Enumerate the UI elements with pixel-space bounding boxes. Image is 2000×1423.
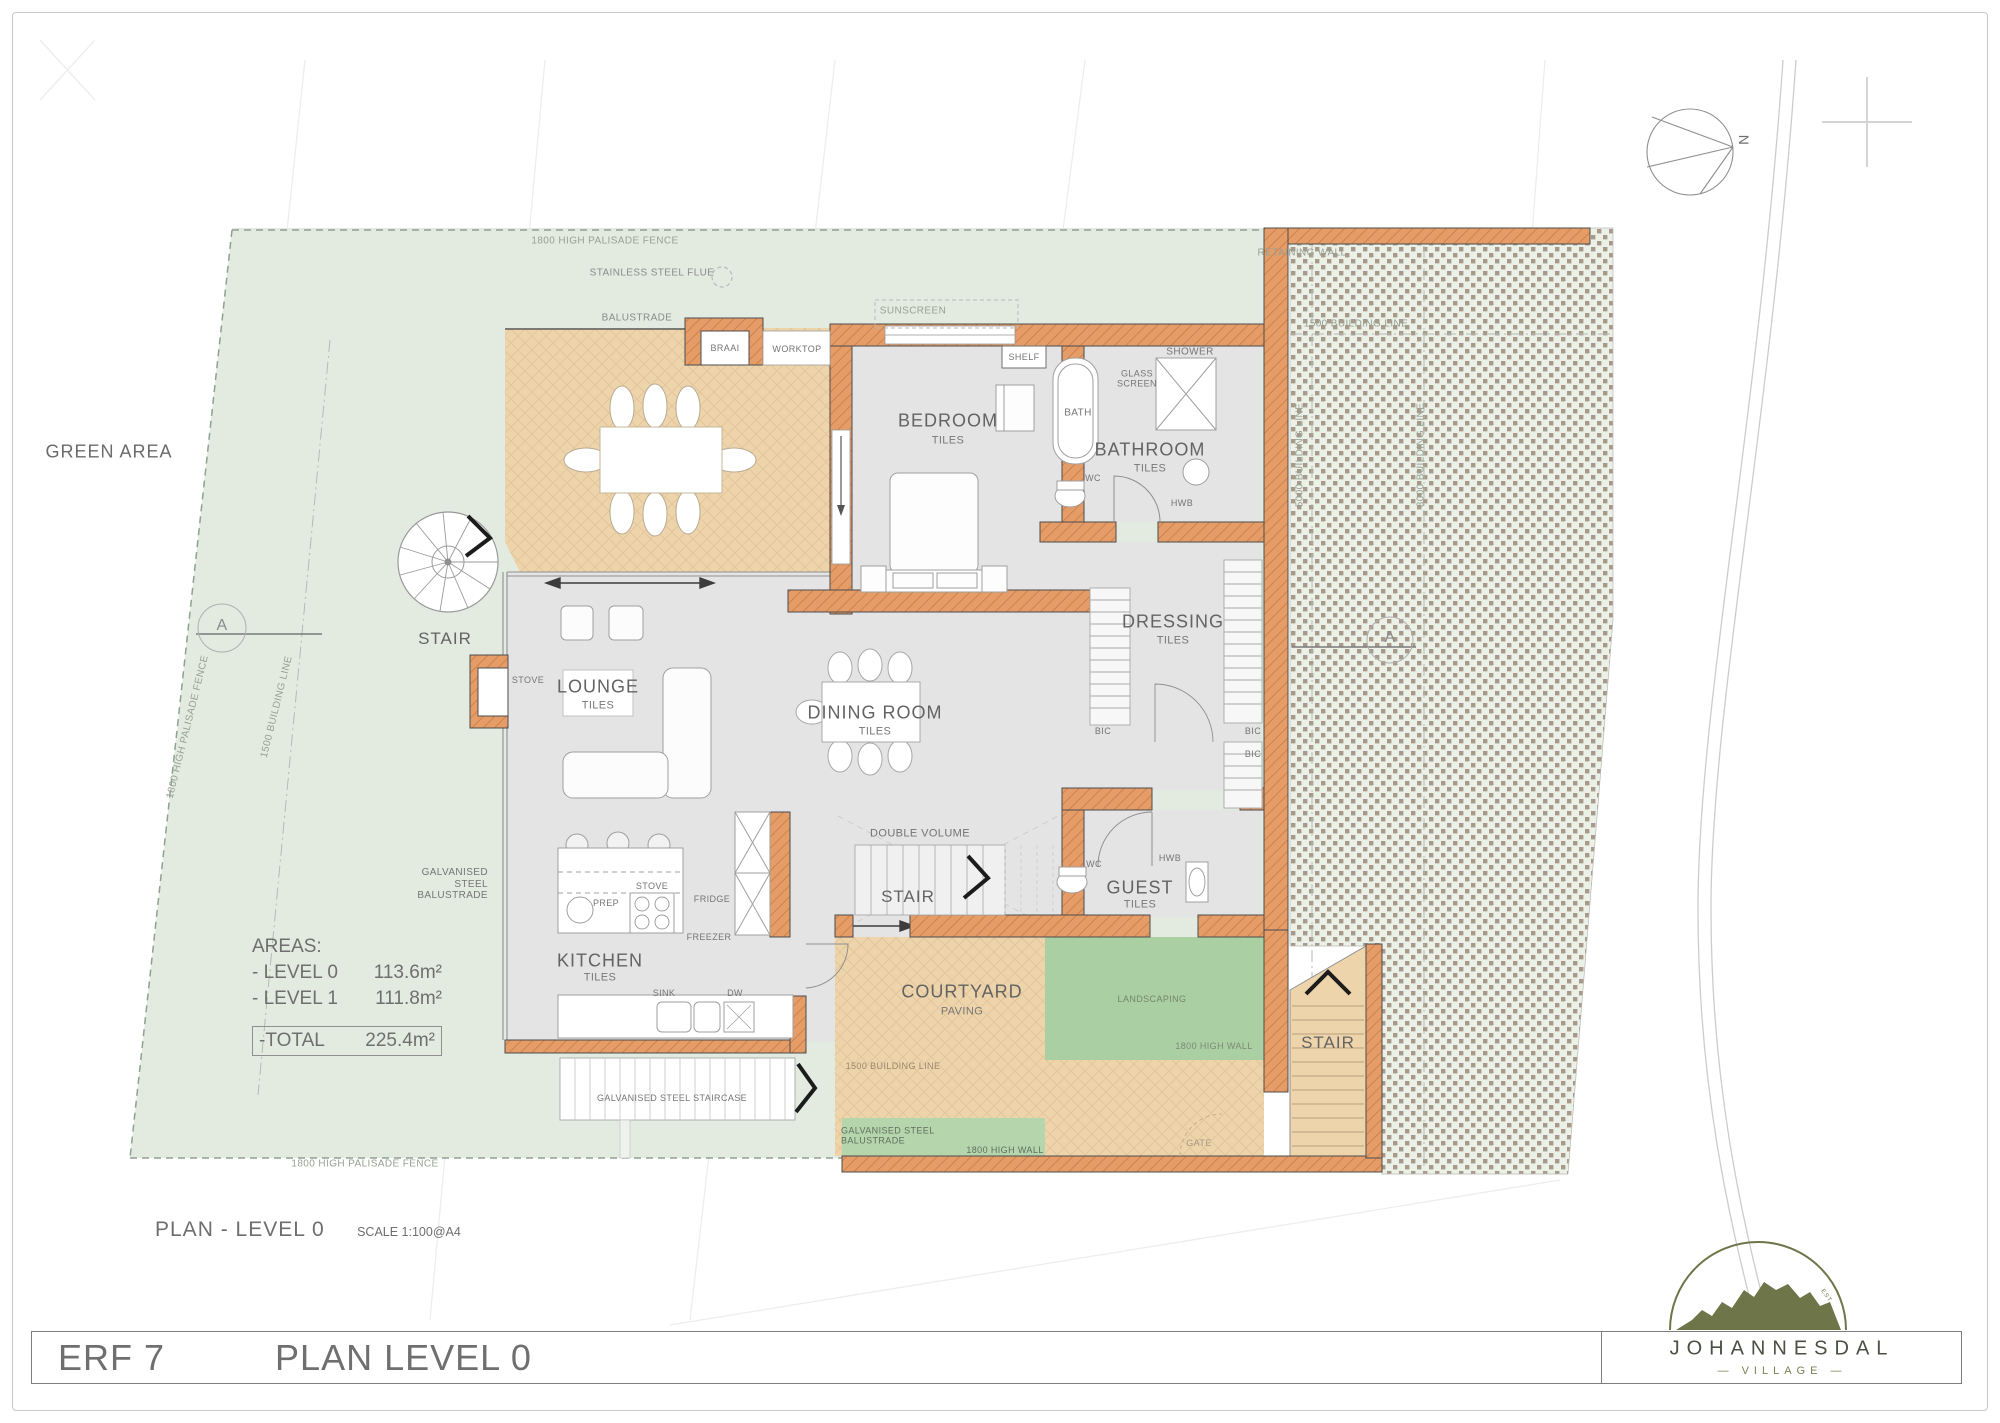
logo-subtitle: — VILLAGE — (1718, 1365, 1847, 1377)
areas-level0-value: 113.6m² (374, 962, 442, 984)
outdoor-stair-label: STAIR (1301, 1033, 1355, 1053)
landscaping-label: LANDSCAPING (1118, 994, 1187, 1004)
north-letter: N (1736, 135, 1752, 146)
fireplace-inner (478, 668, 508, 716)
plan-sheet: GREEN AREA 1800 HIGH PALISADE FENCE 1800… (0, 0, 2000, 1423)
bic-1-label: BIC (1095, 726, 1111, 736)
shower-label: SHOWER (1166, 346, 1213, 358)
building-line-5000-label: 5000 BUILDING LINE (1294, 403, 1306, 507)
areas-row-level1: - LEVEL 1 111.8m² (252, 988, 442, 1010)
room-courtyard-sub: PAVING (941, 1006, 983, 1019)
retaining-wall-label: RETAINING WALL (1258, 247, 1347, 259)
room-bedroom-label: BEDROOM (898, 411, 998, 432)
room-bedroom-sub: TILES (932, 435, 965, 448)
building-line-courtyard-label: 1500 BUILDING LINE (846, 1061, 941, 1071)
areas-total-value: 225.4m² (365, 1030, 435, 1052)
areas-row-level0: - LEVEL 0 113.6m² (252, 962, 442, 984)
north-arrow-icon (1647, 109, 1733, 195)
gate-label: GATE (1186, 1138, 1211, 1148)
spiral-stair (398, 512, 498, 612)
plan-caption-title: PLAN - LEVEL 0 (155, 1218, 325, 1242)
building-line-3000-label: 3000 BUILDING LINE (1415, 403, 1427, 507)
spiral-stair-label: STAIR (418, 629, 472, 649)
sunscreen-label: SUNSCREEN (880, 305, 946, 317)
wc-guest-label: WC (1086, 859, 1102, 869)
double-volume-label: DOUBLE VOLUME (870, 828, 970, 841)
bic-3-label: BIC (1245, 749, 1261, 759)
room-dining-sub: TILES (859, 726, 892, 739)
stove-fireplace-label: STOVE (512, 675, 544, 685)
fence-bottom-label: 1800 HIGH PALISADE FENCE (291, 1158, 438, 1170)
room-bathroom-label: BATHROOM (1095, 440, 1206, 461)
worktop-label: WORKTOP (772, 344, 821, 354)
room-lounge-label: LOUNGE (557, 677, 639, 698)
braai-label: BRAAI (710, 343, 739, 353)
plan-level-title: PLAN LEVEL 0 (275, 1337, 532, 1379)
plan-caption-scale: SCALE 1:100@A4 (357, 1225, 461, 1239)
floor-plan-canvas (0, 0, 2000, 1423)
galv-balustrade-south-label: GALVANISED STEEL BALUSTRADE (841, 1126, 959, 1147)
wc-bathroom-label: WC (1085, 473, 1101, 483)
room-bathroom-sub: TILES (1134, 463, 1167, 476)
building-line-top-right-label: 1500 BUILDING LINE (1304, 318, 1408, 330)
room-dining-label: DINING ROOM (808, 703, 943, 724)
section-a-right-label: A (1384, 629, 1395, 647)
logo-mountain-icon (1670, 1242, 1846, 1330)
freezer-label: FREEZER (687, 932, 732, 942)
bic-2-label: BIC (1245, 726, 1261, 736)
room-kitchen-label: KITCHEN (557, 951, 643, 972)
room-lounge-sub: TILES (582, 700, 615, 713)
galv-balustrade-west-label: GALVANISED STEEL BALUSTRADE (392, 867, 488, 902)
fence-top-label: 1800 HIGH PALISADE FENCE (531, 235, 678, 247)
crosshair-mark (1822, 77, 1912, 167)
interior-stair-label: STAIR (881, 887, 935, 907)
galv-staircase-label: GALVANISED STEEL STAIRCASE (597, 1093, 747, 1103)
hwb-bathroom-label: HWB (1171, 498, 1193, 508)
flue-label: STAINLESS STEEL FLUE (590, 267, 715, 279)
stove-kitchen-label: STOVE (636, 881, 668, 891)
areas-total-row: -TOTAL 225.4m² (252, 1026, 442, 1056)
room-dressing-sub: TILES (1157, 635, 1190, 648)
dw-label: DW (727, 988, 743, 998)
room-guest-label: GUEST (1106, 878, 1173, 899)
areas-level1-label: - LEVEL 1 (252, 988, 338, 1010)
sink-label: SINK (653, 988, 676, 998)
section-a-left-label: A (216, 617, 227, 635)
erf-number: ERF 7 (58, 1337, 165, 1379)
room-courtyard-label: COURTYARD (901, 982, 1022, 1003)
hwb-guest-label: HWB (1159, 853, 1181, 863)
shelf-label: SHELF (1008, 352, 1039, 362)
prep-label: PREP (593, 898, 619, 908)
room-dressing-label: DRESSING (1122, 612, 1224, 633)
glass-screen-label: GLASS SCREEN (1109, 369, 1165, 390)
room-kitchen-sub: TILES (584, 972, 617, 985)
room-guest-sub: TILES (1124, 899, 1157, 912)
logo-name: JOHANNESDAL (1670, 1338, 1895, 1361)
areas-heading: AREAS: (252, 936, 442, 958)
fridge-label: FRIDGE (694, 894, 730, 904)
green-area-label: GREEN AREA (45, 442, 172, 463)
plan-caption: PLAN - LEVEL 0 SCALE 1:100@A4 (155, 1218, 461, 1242)
areas-summary: AREAS: - LEVEL 0 113.6m² - LEVEL 1 111.8… (252, 936, 442, 1056)
areas-level1-value: 111.8m² (375, 988, 442, 1010)
areas-total-label: -TOTAL (259, 1030, 325, 1052)
high-wall-landscaping-label: 1800 HIGH WALL (1175, 1041, 1252, 1051)
balustrade-label: BALUSTRADE (602, 312, 673, 324)
areas-level0-label: - LEVEL 0 (252, 962, 338, 984)
high-wall-south-label: 1800 HIGH WALL (966, 1145, 1043, 1155)
road-edge-lines (1698, 60, 1796, 1312)
bath-label: BATH (1064, 407, 1092, 419)
